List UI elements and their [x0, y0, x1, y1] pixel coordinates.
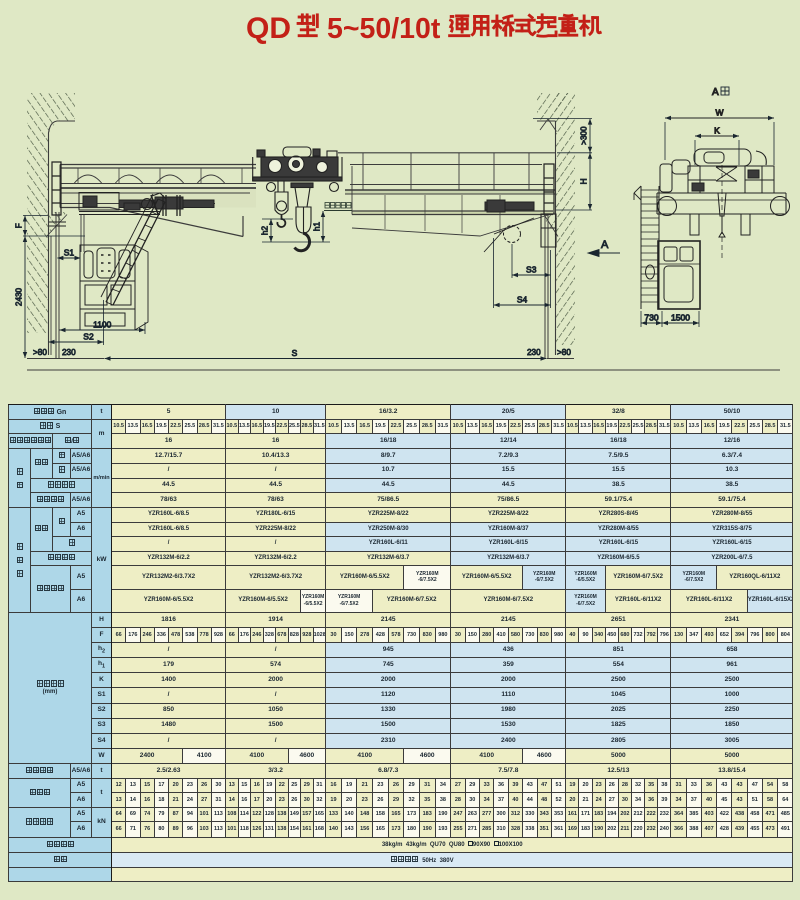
svg-text:730: 730	[644, 313, 658, 323]
svg-text:S: S	[292, 348, 298, 358]
svg-text:S4: S4	[517, 295, 528, 305]
svg-text:F: F	[15, 223, 24, 228]
svg-text:S2: S2	[83, 332, 94, 342]
svg-text:230: 230	[527, 348, 541, 357]
svg-text:h1: h1	[313, 222, 322, 232]
svg-text:>80: >80	[33, 348, 47, 357]
svg-text:S1: S1	[64, 248, 75, 258]
svg-text:K: K	[714, 126, 720, 136]
svg-text:>300: >300	[580, 126, 589, 145]
svg-text:H: H	[580, 178, 589, 184]
svg-text:h2: h2	[261, 226, 270, 236]
svg-text:1100: 1100	[93, 320, 112, 330]
svg-text:A: A	[712, 87, 719, 98]
svg-text:1500: 1500	[671, 313, 690, 323]
svg-text:A: A	[601, 239, 609, 251]
svg-text:W: W	[715, 108, 723, 118]
svg-text:2430: 2430	[15, 287, 24, 306]
svg-text:230: 230	[62, 348, 76, 357]
svg-text:>80: >80	[557, 348, 571, 357]
svg-text:S3: S3	[526, 265, 537, 275]
